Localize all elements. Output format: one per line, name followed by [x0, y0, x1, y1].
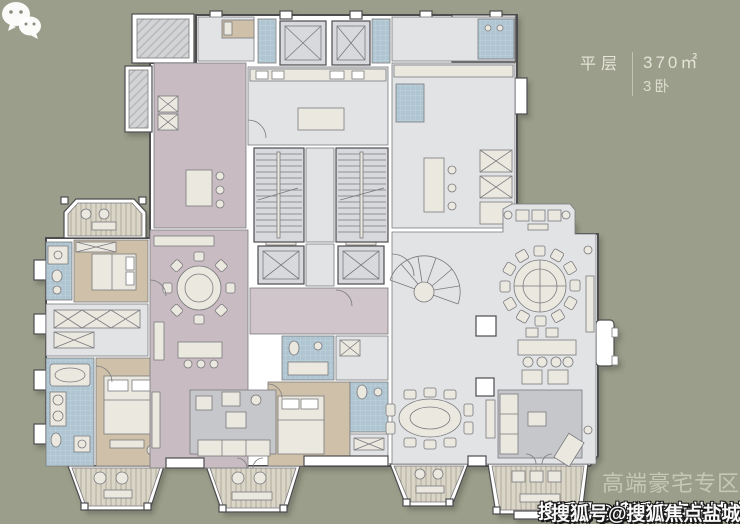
plan-bedrooms: 3卧 [643, 77, 700, 97]
elevator-shaft-1 [280, 21, 326, 65]
room-foyer [250, 288, 388, 334]
room-bath-top [478, 19, 514, 59]
kitchen-island [424, 158, 444, 212]
bed-1 [92, 254, 136, 290]
elevator-shaft-3 [258, 240, 304, 284]
account-watermark-echo: 搜狐号@搜狐焦点盐城站 [551, 499, 740, 524]
balcony-deck [68, 203, 142, 236]
study-desk [178, 342, 222, 368]
breakfast-table [186, 170, 212, 206]
room-wc-1 [258, 19, 276, 63]
side-window-bay [515, 78, 527, 114]
bathtub-master [50, 364, 90, 386]
room-laundry [396, 84, 424, 122]
right-wing [386, 204, 596, 467]
staircase-2 [336, 148, 388, 242]
roof-terrace-hatch [137, 19, 189, 58]
room-wc-2 [372, 19, 390, 63]
bed-maid [222, 20, 254, 38]
stair-corridor [306, 148, 334, 242]
wechat-icon [0, 0, 42, 40]
plan-type-label: 平层 [580, 52, 622, 76]
room-bath-3 [350, 382, 388, 432]
plan-area: 370㎡ [643, 52, 700, 74]
staircase-1 [254, 148, 304, 242]
east-porch [596, 320, 614, 366]
section-watermark: 高端豪宅专区 [602, 466, 740, 498]
column [476, 378, 494, 396]
bed-3 [278, 396, 324, 454]
elevator-shaft-4 [338, 240, 384, 284]
lift-corridor [306, 244, 334, 286]
column [476, 316, 496, 336]
title-divider [632, 52, 633, 96]
tv-console [152, 392, 160, 448]
title-block: 平层 370㎡ 3卧 [580, 52, 700, 97]
elevator-shaft-2 [332, 21, 370, 65]
floorplan-page: 平层 370㎡ 3卧 高端豪宅专区 搜狐号@搜狐焦点盐城站 搜狐号@搜狐焦点盐城… [0, 0, 740, 524]
kitchen-counter [394, 65, 513, 77]
